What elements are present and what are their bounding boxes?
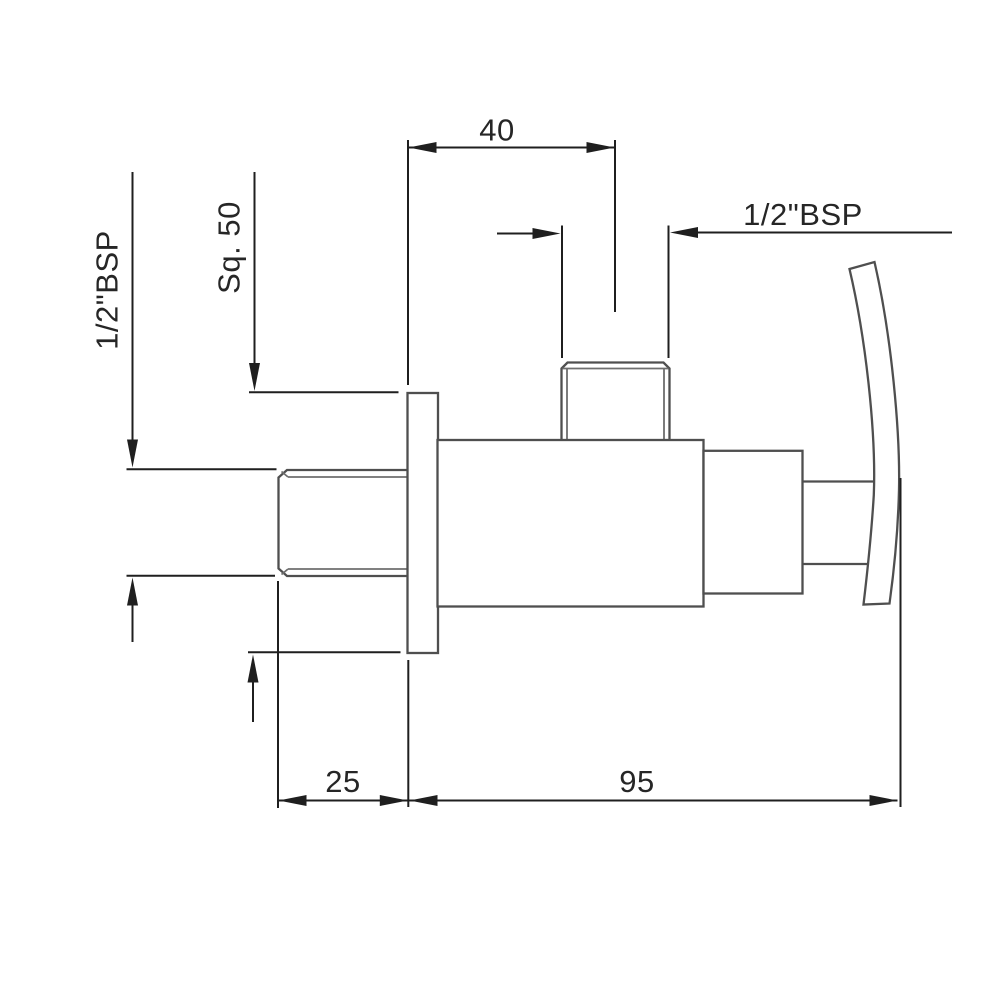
inlet-nipple-outline — [279, 470, 409, 576]
valve-part-outlines — [279, 262, 900, 653]
arrowhead-25-left — [279, 795, 307, 806]
dimension-label-inlet-bsp: 1/2"BSP — [90, 230, 125, 350]
arrowhead-up — [248, 655, 259, 683]
arrowhead-right — [587, 142, 615, 153]
arrowhead-up — [127, 578, 138, 606]
drawing-canvas: 40 1/2"BSP 1/2"BSP — [0, 0, 1000, 1000]
dimension-label-sq50: Sq. 50 — [212, 201, 247, 294]
dimension-inlet-thread: 1/2"BSP — [90, 172, 277, 642]
valve-technical-drawing: 40 1/2"BSP 1/2"BSP — [0, 0, 1000, 1000]
stem-outline — [803, 482, 874, 565]
arrowhead-left-pointing — [670, 227, 698, 238]
arrowhead-down — [127, 440, 138, 468]
arrowhead-95-left — [410, 795, 438, 806]
dimension-label-outlet-bsp: 1/2"BSP — [743, 197, 863, 232]
valve-body-outline — [438, 440, 704, 607]
arrowhead-95-right — [870, 795, 898, 806]
lever-handle-outline — [850, 262, 900, 605]
outlet-port-outline — [562, 363, 670, 442]
arrowhead-25-right — [380, 795, 408, 806]
wall-flange-outline — [408, 393, 439, 653]
dimension-top-width-40: 40 — [408, 113, 615, 386]
dimension-label-25: 25 — [325, 764, 360, 799]
bonnet-outline — [704, 451, 803, 594]
arrowhead-down — [249, 363, 260, 391]
dimension-flange-square: Sq. 50 — [212, 172, 401, 722]
dimension-label-40: 40 — [479, 113, 514, 148]
arrowhead-left — [409, 142, 437, 153]
dimension-label-95: 95 — [619, 764, 654, 799]
arrowhead-right-pointing — [533, 228, 561, 239]
